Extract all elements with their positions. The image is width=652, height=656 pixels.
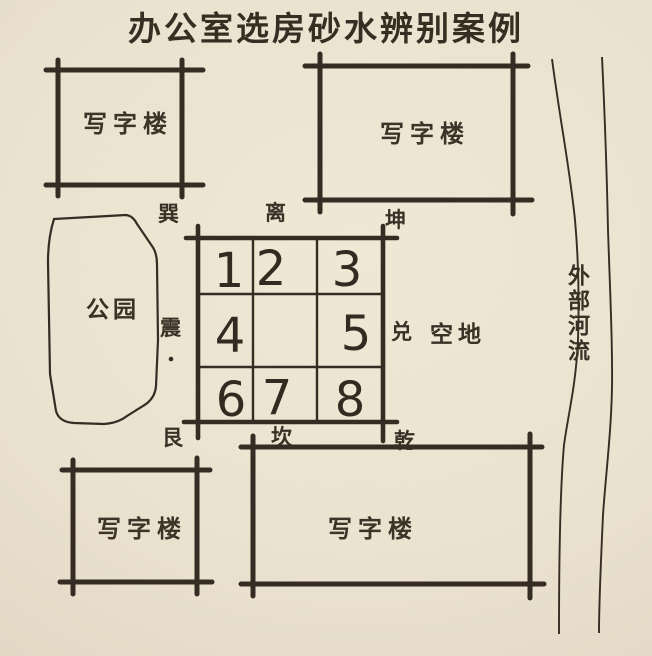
trigram-xun: 巽 (158, 204, 179, 225)
building-top-left-label: 写字楼 (83, 112, 173, 136)
grid-cell-3: 3 (325, 242, 369, 298)
vacant-land-label: 空地 (430, 324, 486, 347)
trigram-zhen: 震 (160, 318, 181, 339)
grid-cell-1: 1 (207, 243, 251, 299)
ink-dot (169, 357, 174, 362)
trigram-dui: 兑 (391, 322, 412, 343)
grid-cell-8: 8 (328, 372, 372, 428)
grid-cell-5: 5 (334, 306, 378, 362)
park-label: 公园 (86, 299, 140, 322)
diagram-shapes (0, 0, 652, 656)
grid-cell-6: 6 (209, 372, 253, 428)
building-top-right-label: 写字楼 (380, 122, 470, 146)
page-title: 办公室选房砂水辨别案例 (0, 12, 652, 45)
trigram-kan: 坎 (271, 427, 292, 448)
grid-cell-4: 4 (208, 308, 252, 364)
river-label: 外部河流 (565, 264, 587, 364)
trigram-qian: 乾 (394, 431, 415, 452)
trigram-kun: 坤 (385, 210, 406, 231)
grid-cell-7: 7 (255, 370, 299, 426)
book-page: 办公室选房砂水辨别案例 写字楼 写字楼 写字楼 写字楼 公园 空地 外部河流 巽… (0, 0, 652, 656)
river-right-bank (599, 57, 612, 633)
trigram-gen: 艮 (162, 428, 183, 449)
building-bottom-wide-label: 写字楼 (328, 517, 418, 541)
grid-cell-2: 2 (249, 241, 293, 297)
building-bottom-left-label: 写字楼 (97, 517, 187, 541)
trigram-li: 离 (265, 203, 286, 224)
